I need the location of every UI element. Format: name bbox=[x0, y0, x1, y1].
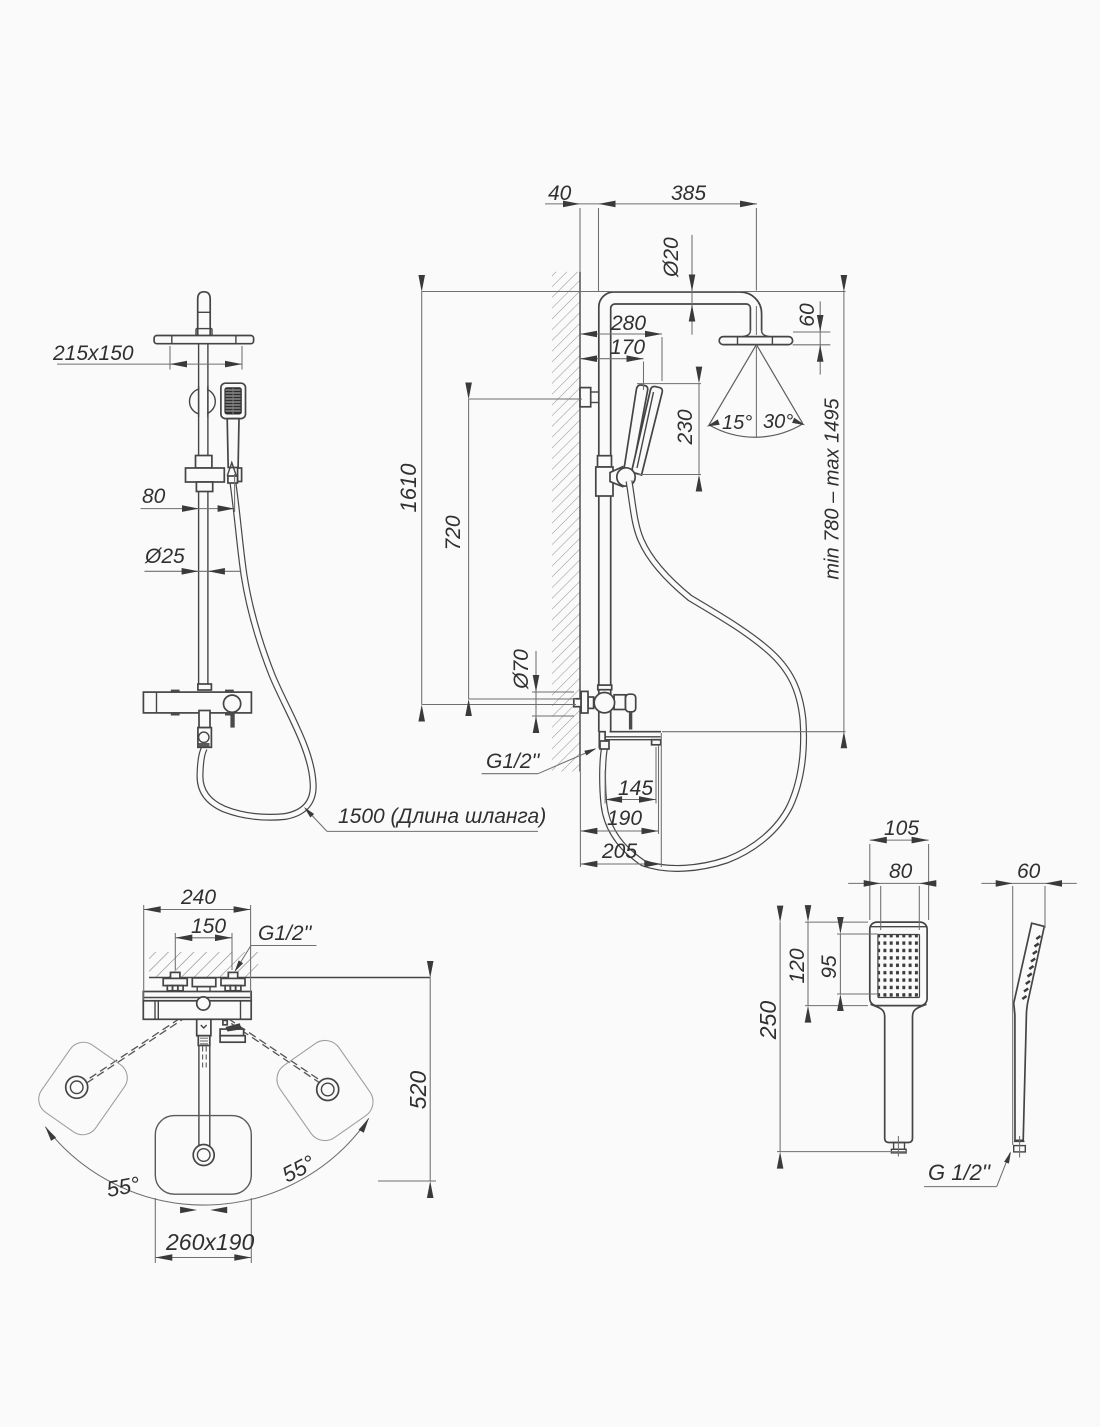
svg-text:80: 80 bbox=[142, 485, 166, 508]
svg-text:260x190: 260x190 bbox=[165, 1229, 254, 1255]
svg-text:145: 145 bbox=[618, 777, 653, 800]
svg-text:385: 385 bbox=[671, 182, 706, 205]
svg-text:80: 80 bbox=[889, 860, 913, 883]
svg-text:215x150: 215x150 bbox=[52, 342, 134, 365]
svg-text:Ø70: Ø70 bbox=[510, 649, 533, 690]
svg-text:G1/2'': G1/2'' bbox=[258, 922, 313, 945]
svg-text:170: 170 bbox=[610, 336, 645, 359]
svg-text:Ø25: Ø25 bbox=[144, 545, 185, 568]
svg-text:240: 240 bbox=[180, 886, 216, 909]
svg-text:40: 40 bbox=[548, 182, 572, 205]
svg-text:520: 520 bbox=[405, 1071, 431, 1110]
svg-text:105: 105 bbox=[884, 817, 919, 840]
svg-text:60: 60 bbox=[1017, 860, 1041, 883]
svg-text:1610: 1610 bbox=[396, 463, 421, 513]
svg-text:Ø20: Ø20 bbox=[660, 237, 683, 278]
svg-text:250: 250 bbox=[755, 1001, 781, 1041]
svg-text:150: 150 bbox=[191, 915, 226, 938]
svg-text:205: 205 bbox=[601, 840, 637, 863]
svg-text:95: 95 bbox=[818, 955, 841, 979]
svg-text:1500 (Длина шланга): 1500 (Длина шланга) bbox=[338, 805, 546, 828]
svg-text:190: 190 bbox=[607, 807, 642, 830]
svg-text:60: 60 bbox=[796, 303, 819, 327]
svg-text:G 1/2'': G 1/2'' bbox=[928, 1160, 991, 1185]
svg-text:120: 120 bbox=[786, 948, 809, 983]
svg-text:230: 230 bbox=[674, 409, 697, 445]
svg-text:min 780 – max 1495: min 780 – max 1495 bbox=[822, 398, 844, 580]
svg-text:720: 720 bbox=[442, 515, 465, 550]
svg-text:15°: 15° bbox=[722, 412, 752, 434]
svg-text:280: 280 bbox=[610, 312, 646, 335]
svg-text:G1/2'': G1/2'' bbox=[486, 750, 541, 773]
svg-text:30°: 30° bbox=[763, 411, 793, 433]
